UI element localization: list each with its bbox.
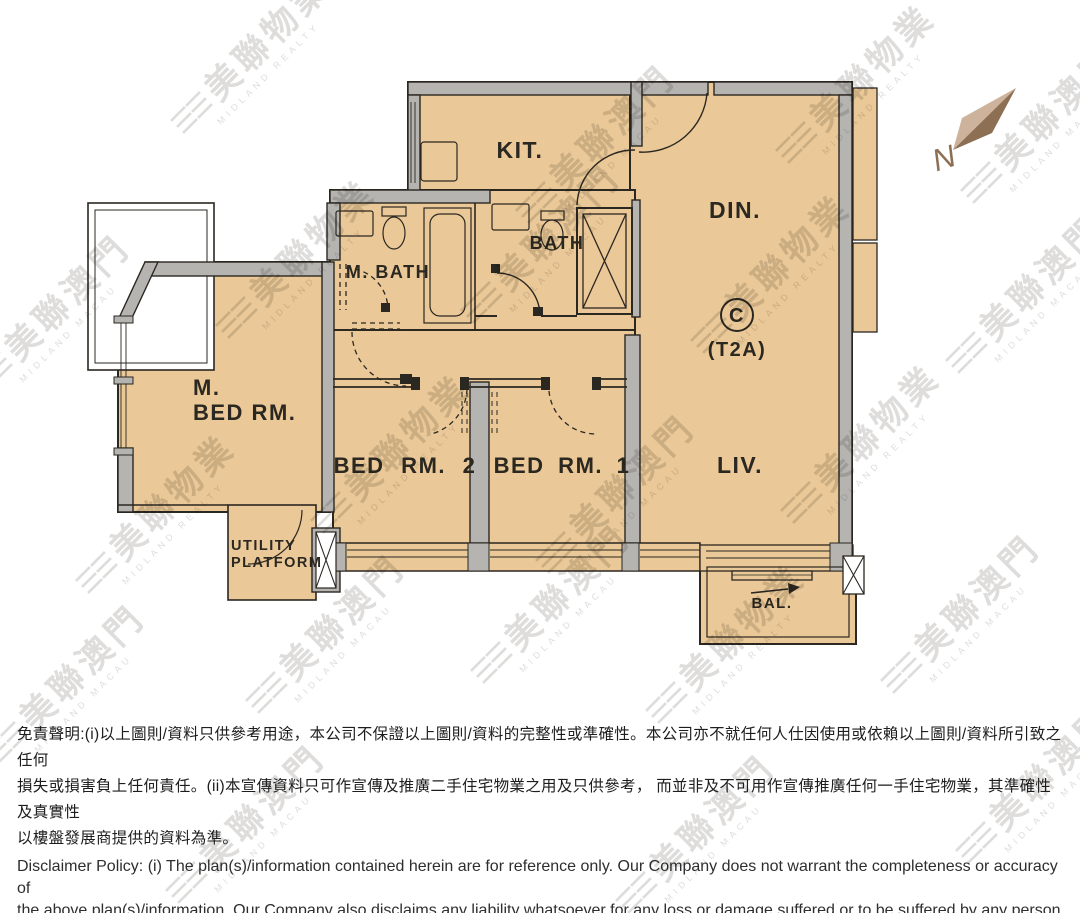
label-utility-1b: UTILITY — [231, 538, 296, 554]
door-stop — [491, 264, 500, 273]
label-balcony: BAL. — [752, 595, 793, 612]
door-stop — [533, 307, 543, 316]
window-band-bottom — [333, 543, 700, 571]
door-jamb-kitchen — [631, 82, 642, 146]
balcony-ac-box — [843, 556, 864, 594]
label-utility-2: PLATFORM — [231, 555, 322, 571]
label-bedroom2: BED RM. 2 — [334, 453, 477, 478]
wall-mbed-top — [145, 262, 330, 276]
wall-top-right — [714, 82, 852, 95]
wall-bed1-living — [625, 335, 640, 558]
door-stop — [381, 303, 390, 312]
disclaimer-en-line: the above plan(s)/information. Our Compa… — [17, 900, 1067, 913]
wall-kitchen-left — [408, 95, 420, 195]
window-sill — [114, 448, 133, 455]
disclaimer-zh-line: 免責聲明:(i)以上圖則/資料只供參考用途，本公司不保證以上圖則/資料的完整性或… — [17, 722, 1067, 774]
north-arrow-icon: N — [928, 88, 1016, 178]
label-living: LIV. — [717, 452, 763, 478]
label-bath: BATH — [530, 233, 585, 253]
door-post — [411, 377, 420, 390]
right-strip-lower — [853, 243, 877, 332]
window-sill — [114, 377, 133, 384]
label-unit: C — [729, 305, 745, 327]
label-master-bath: M. BATH — [346, 262, 430, 282]
right-strip-upper — [853, 88, 877, 240]
wall-top-left — [408, 82, 708, 95]
disclaimer-zh-line: 損失或損害負上任何責任。(ii)本宣傳資料只可作宣傳及推廣二手住宅物業之用及只供… — [17, 774, 1067, 826]
floor-plan-page: KIT. DIN. BATH M. BATH BED RM. 2 BED RM.… — [0, 0, 1080, 913]
disclaimer-block: 免責聲明:(i)以上圖則/資料只供參考用途，本公司不保證以上圖則/資料的完整性或… — [17, 722, 1067, 913]
label-unit-type: (T2A) — [708, 339, 767, 361]
wall-shaft-right — [632, 200, 640, 317]
door-post — [541, 377, 550, 390]
wall-mbed-right — [322, 262, 334, 512]
wall-mbed-left-lower — [118, 448, 133, 512]
door-post — [460, 377, 469, 390]
label-kitchen: KIT. — [497, 137, 544, 163]
label-master-bedroom-2: BED RM. — [193, 400, 296, 425]
door-stop — [400, 374, 412, 384]
label-master-bedroom-1: M. — [193, 375, 220, 400]
label-dining: DIN. — [709, 197, 761, 223]
window-sill — [114, 316, 133, 323]
shaft-x-box — [577, 208, 632, 314]
disclaimer-en-line: Disclaimer Policy: (i) The plan(s)/infor… — [17, 856, 1067, 900]
flat-roof-platform — [88, 203, 214, 370]
wall-mbath-top — [330, 190, 490, 203]
disclaimer-zh-line: 以樓盤發展商提供的資料為準。 — [17, 826, 1067, 852]
door-post — [592, 377, 601, 390]
label-bedroom1: BED RM. 1 — [494, 453, 631, 478]
wall-right — [839, 95, 852, 560]
